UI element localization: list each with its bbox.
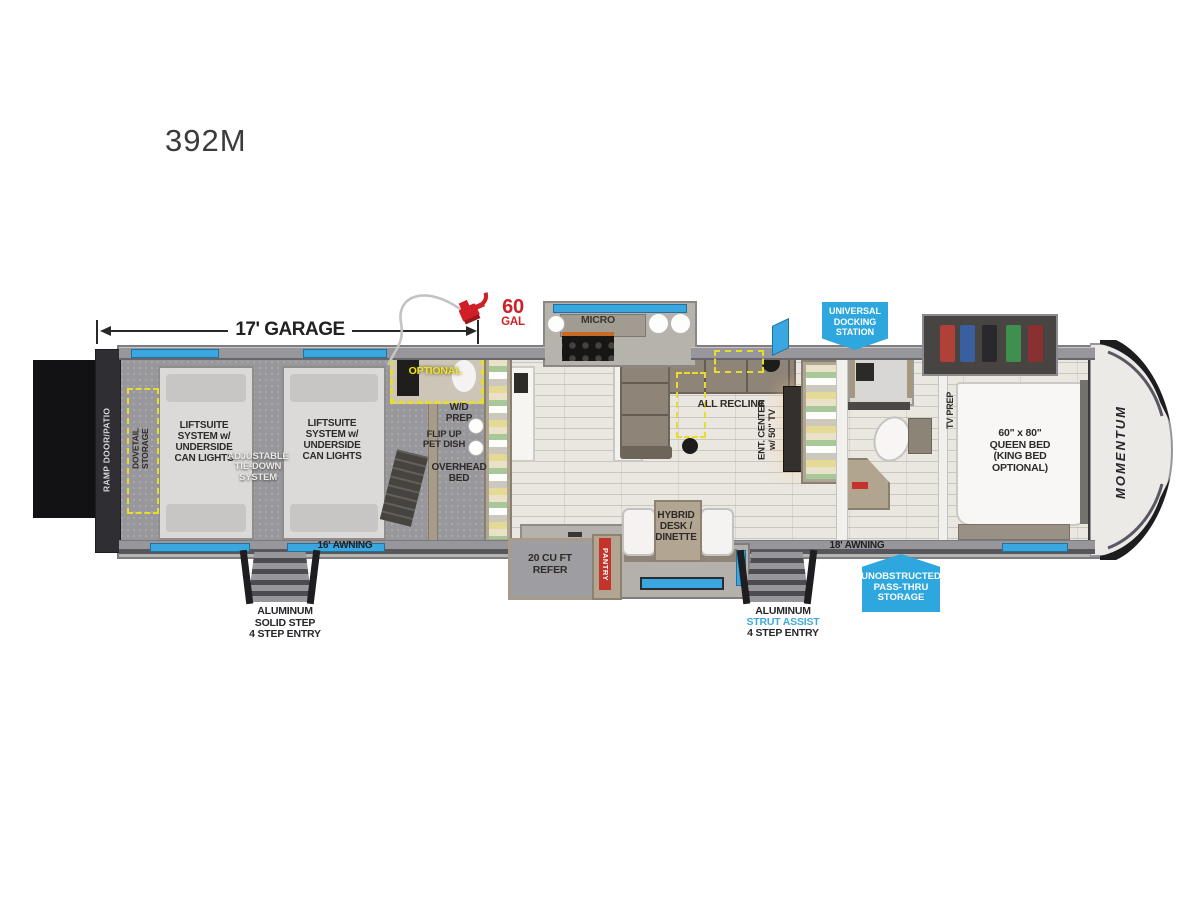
- ent-cabinet: [801, 360, 841, 484]
- bed-pillow: [166, 374, 246, 402]
- cabinet-shelves: [489, 359, 507, 539]
- bath-cabinet: [908, 418, 932, 454]
- window: [150, 543, 250, 552]
- kitchen-sink: [670, 313, 691, 334]
- garage-dimension-label: 17' GARAGE: [228, 320, 352, 341]
- entry-steps-garage: [248, 552, 312, 602]
- kitchen-slide: [543, 301, 697, 367]
- fuel-capacity-unit: GAL: [496, 316, 530, 329]
- pet-dish-label: FLIP UP PET DISH: [420, 430, 468, 451]
- hanging-clothes: [982, 325, 997, 362]
- momentum-logo: MOMENTUM: [1110, 378, 1132, 526]
- window: [303, 349, 387, 358]
- closet-slide: [922, 314, 1058, 376]
- bed-pillow: [290, 374, 378, 402]
- floorplan-canvas: 392M 17' GARAGE 60 GAL RAMP DOOR/PATIO: [0, 0, 1200, 900]
- hanging-clothes: [960, 325, 975, 362]
- liftsuite-right-label: LIFTSUITE SYSTEM w/ UNDERSIDE CAN LIGHTS: [282, 418, 382, 462]
- shower-bench: [850, 360, 855, 398]
- pantry-label: PANTRY: [599, 539, 611, 589]
- tiedown-label: ADJUSTABLE TIE-DOWN SYSTEM: [226, 452, 290, 483]
- entry-steps-bedroom-label-line3: 4 STEP ENTRY: [738, 628, 828, 640]
- dinette-chair: [700, 508, 734, 556]
- awning-18-label: 18' AWNING: [812, 540, 902, 551]
- cabinet-shelves: [806, 365, 836, 479]
- vanity-sink-items: [852, 482, 868, 489]
- bed-pillow: [166, 504, 246, 532]
- shower: [848, 356, 914, 406]
- ramp-door-label: RAMP DOOR/PATIO: [97, 380, 117, 520]
- fuel-capacity-value: 60: [496, 296, 530, 318]
- overhead-bed-label: OVERHEAD BED: [428, 462, 490, 484]
- ent-center-label: ENT. CENTER w/ 50" TV: [756, 394, 780, 466]
- awning-16-label: 16' AWNING: [300, 540, 390, 551]
- queen-bed-label: 60" x 80" QUEEN BED (KING BED OPTIONAL): [962, 428, 1078, 474]
- counter-appliance: [514, 373, 528, 393]
- pet-dish: [468, 440, 484, 456]
- bed-headboard: [1080, 380, 1088, 524]
- entry-steps-garage-label: ALUMINUM SOLID STEP 4 STEP ENTRY: [240, 606, 330, 641]
- island-faucet: [568, 532, 582, 537]
- sofa-side-table: [682, 438, 698, 454]
- bath-wall: [836, 352, 848, 544]
- micro-label: MICRO: [560, 315, 636, 327]
- tv-prep-label: TV PREP: [944, 386, 958, 434]
- garage-dimension-line-left: [110, 330, 228, 332]
- stove: [562, 336, 614, 361]
- shower-head: [856, 363, 874, 381]
- bed-pillow: [290, 504, 378, 532]
- dinette-chair: [622, 508, 656, 556]
- kitchen-wall-column: [509, 366, 535, 462]
- garage-dimension-tick-left: [96, 320, 98, 344]
- bath-counter: [848, 402, 910, 410]
- window: [131, 349, 219, 358]
- passthru-storage-badge: UNOBSTRUCTED PASS-THRU STORAGE: [862, 554, 940, 612]
- hanging-clothes: [940, 325, 955, 362]
- optional-zone: [714, 350, 764, 373]
- window: [640, 577, 724, 590]
- bedroom-wall: [938, 356, 948, 544]
- entry-steps-bedroom: [745, 552, 809, 602]
- kitchen-sink: [648, 313, 669, 334]
- docking-station-badge: UNIVERSAL DOCKING STATION: [822, 302, 888, 350]
- ramp-door-patio: [33, 360, 95, 518]
- window: [1002, 543, 1068, 552]
- front-cap: [1090, 338, 1176, 562]
- hanging-clothes: [1006, 325, 1021, 362]
- sofa-armrest: [620, 446, 672, 459]
- refer-label: 20 CU FT REFER: [510, 553, 590, 576]
- window: [553, 304, 687, 313]
- bed-bench: [958, 524, 1070, 540]
- galley-cabinet: [484, 354, 512, 544]
- dinette-label: HYBRID DESK / DINETTE: [652, 510, 700, 543]
- fuel-pump-icon: [452, 292, 496, 330]
- shower-bench: [907, 360, 912, 398]
- page-title: 392M: [165, 123, 247, 159]
- dovetail-storage-label: DOVETAIL STORAGE: [128, 398, 154, 500]
- optional-label: OPTIONAL: [400, 366, 470, 378]
- wd-prep-label: W/D PREP: [436, 402, 482, 424]
- hanging-clothes: [1028, 325, 1043, 362]
